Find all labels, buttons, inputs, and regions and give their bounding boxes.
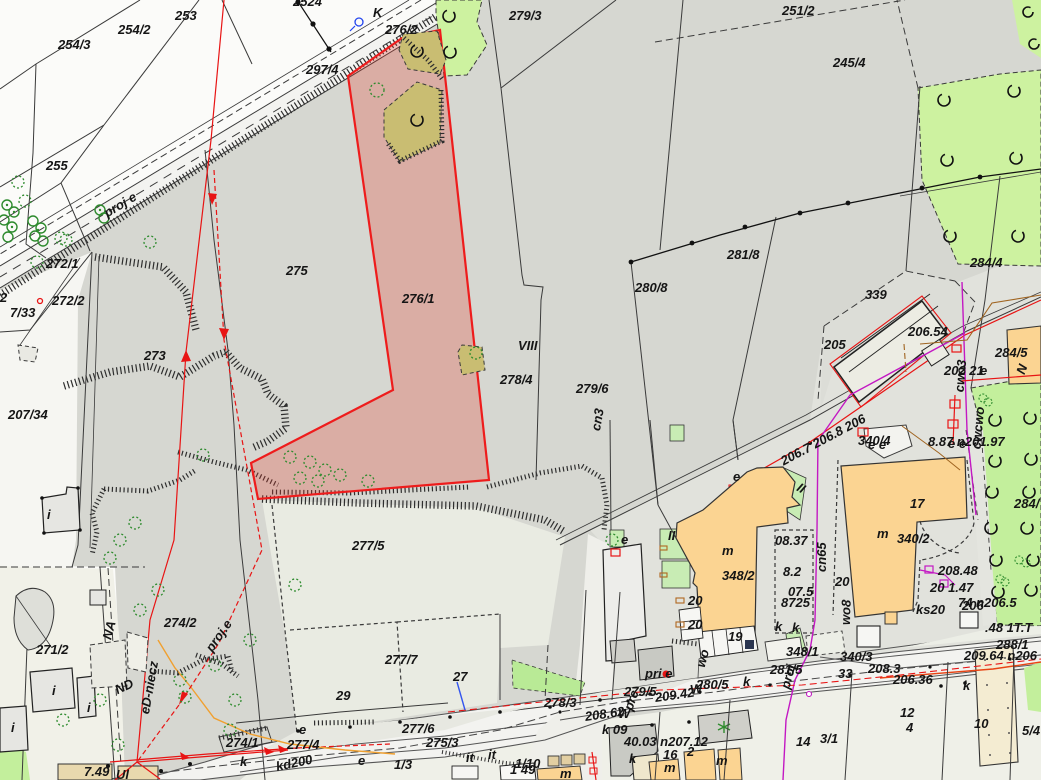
svg-text:348/1: 348/1 [786, 644, 819, 659]
svg-text:m: m [664, 760, 676, 775]
svg-text:Ul: Ul [116, 767, 129, 780]
svg-text:340/2: 340/2 [897, 531, 930, 546]
svg-text:wo8: wo8 [838, 599, 854, 626]
svg-text:12: 12 [900, 705, 915, 720]
svg-text:2: 2 [0, 290, 8, 305]
svg-text:274/1: 274/1 [225, 735, 259, 750]
svg-text:e: e [733, 469, 740, 484]
svg-text:7/33: 7/33 [10, 305, 36, 320]
svg-text:2524: 2524 [292, 0, 323, 9]
svg-text:253: 253 [174, 8, 197, 23]
svg-text:272/1: 272/1 [45, 256, 79, 271]
svg-text:i: i [47, 507, 51, 522]
svg-text:275/3: 275/3 [425, 735, 459, 750]
svg-text:281/8: 281/8 [726, 247, 760, 262]
svg-text:275: 275 [285, 263, 308, 278]
svg-text:e: e [299, 722, 306, 737]
svg-text:20: 20 [687, 593, 703, 608]
svg-text:7.49: 7.49 [84, 764, 110, 779]
svg-text:276/1: 276/1 [401, 291, 435, 306]
svg-text:255: 255 [45, 158, 68, 173]
svg-text:274/2: 274/2 [163, 615, 197, 630]
svg-text:14: 14 [796, 734, 811, 749]
svg-text:1 49: 1 49 [510, 762, 536, 777]
svg-text:cn65: cn65 [814, 542, 829, 572]
svg-text:20 1.47: 20 1.47 [929, 580, 974, 595]
svg-text:280/8: 280/8 [634, 280, 668, 295]
svg-text:277/6: 277/6 [401, 721, 435, 736]
svg-text:20: 20 [687, 617, 703, 632]
svg-text:278/3: 278/3 [543, 695, 577, 710]
svg-text:5/4: 5/4 [1022, 723, 1041, 738]
svg-text:.48 1T.T: .48 1T.T [985, 620, 1034, 635]
svg-text:284/4: 284/4 [969, 255, 1003, 270]
svg-text:40.03 n207.12: 40.03 n207.12 [623, 734, 709, 749]
svg-text:278/4: 278/4 [499, 372, 533, 387]
svg-text:8725: 8725 [781, 595, 811, 610]
svg-text:i: i [52, 683, 56, 698]
svg-text:10: 10 [974, 716, 989, 731]
svg-text:339: 339 [865, 287, 887, 302]
svg-text:273: 273 [143, 348, 166, 363]
svg-text:8.87 n201.97: 8.87 n201.97 [928, 434, 1005, 449]
svg-text:284/: 284/ [1013, 496, 1041, 511]
svg-text:e: e [621, 532, 628, 547]
svg-text:k: k [240, 754, 248, 769]
svg-text:74 n206.5: 74 n206.5 [958, 595, 1017, 610]
svg-text:251/2: 251/2 [781, 3, 815, 18]
svg-text:e: e [358, 753, 365, 768]
svg-text:i: i [11, 720, 15, 735]
svg-text:08.37: 08.37 [775, 533, 808, 548]
svg-text:k: k [743, 674, 751, 689]
svg-text:it: it [488, 747, 497, 762]
svg-text:208.48: 208.48 [937, 563, 979, 578]
svg-text:ks20: ks20 [916, 602, 946, 617]
svg-text:27: 27 [452, 669, 468, 684]
svg-text:254/2: 254/2 [117, 22, 151, 37]
svg-text:206.54: 206.54 [907, 324, 949, 339]
svg-text:33: 33 [838, 666, 853, 681]
svg-text:245/4: 245/4 [832, 55, 866, 70]
svg-text:m: m [716, 753, 728, 768]
svg-text:k: k [792, 620, 800, 635]
svg-text:k: k [963, 678, 971, 693]
svg-text:348/2: 348/2 [722, 568, 755, 583]
svg-text:K: K [373, 5, 384, 20]
svg-text:277/4: 277/4 [286, 737, 320, 752]
svg-text:207/34: 207/34 [7, 407, 49, 422]
svg-text:277/5: 277/5 [351, 538, 385, 553]
svg-text:20: 20 [834, 574, 850, 589]
svg-text:205: 205 [823, 337, 846, 352]
svg-text:279/6: 279/6 [575, 381, 609, 396]
svg-text:k 09: k 09 [602, 722, 628, 737]
svg-text:it: it [466, 750, 475, 765]
svg-text:m: m [722, 543, 734, 558]
svg-text:W: W [618, 706, 632, 721]
svg-text:277/7: 277/7 [384, 652, 418, 667]
svg-text:e e: e e [868, 437, 886, 452]
svg-text:209.64 n206: 209.64 n206 [963, 648, 1038, 663]
svg-text:297/4: 297/4 [305, 62, 339, 77]
svg-text:3/1: 3/1 [820, 731, 838, 746]
svg-text:m: m [560, 766, 572, 780]
svg-text:272/2: 272/2 [51, 293, 85, 308]
svg-text:208.3: 208.3 [867, 661, 901, 676]
svg-text:4: 4 [905, 720, 914, 735]
svg-text:1/3: 1/3 [394, 757, 413, 772]
svg-text:17: 17 [910, 496, 925, 511]
svg-text:19: 19 [728, 629, 743, 644]
svg-text:254/3: 254/3 [57, 37, 91, 52]
svg-text:i: i [87, 700, 91, 715]
svg-text:279/3: 279/3 [508, 8, 542, 23]
svg-text:cwo3: cwo3 [951, 358, 969, 392]
svg-text:29: 29 [335, 688, 351, 703]
svg-text:271/2: 271/2 [35, 642, 69, 657]
svg-text:m: m [877, 526, 889, 541]
svg-text:pri e: pri e [644, 666, 672, 681]
svg-text:k: k [629, 751, 637, 766]
svg-text:k: k [775, 619, 783, 634]
svg-text:284/5: 284/5 [994, 345, 1028, 360]
svg-text:VIII: VIII [518, 338, 538, 353]
svg-text:8.2: 8.2 [783, 564, 802, 579]
svg-text:276/2: 276/2 [384, 22, 418, 37]
